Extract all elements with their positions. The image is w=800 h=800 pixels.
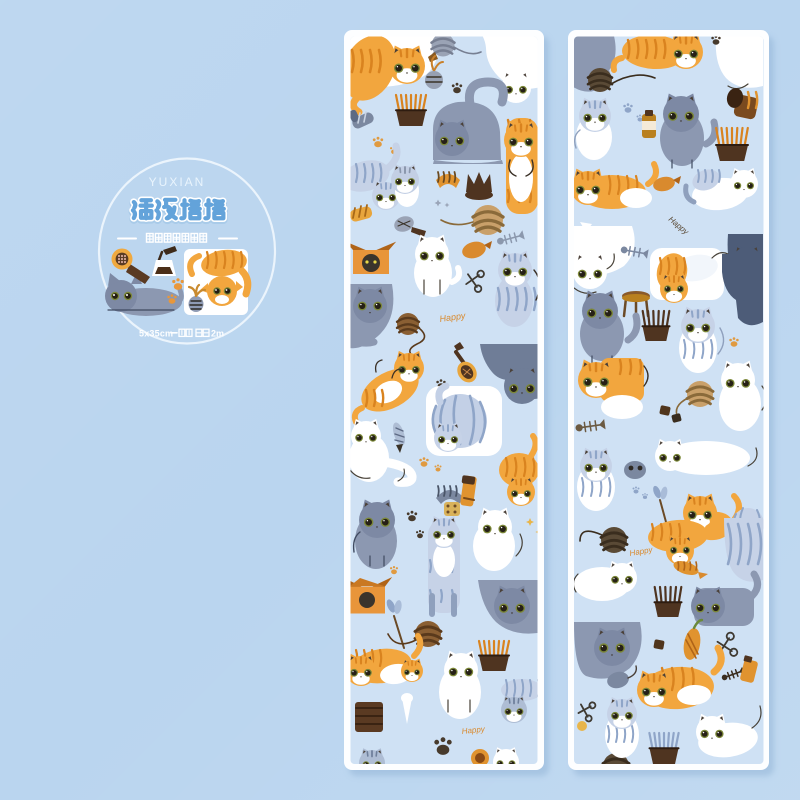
svg-text:2m: 2m (211, 329, 224, 339)
svg-text:YUXIAN: YUXIAN (149, 175, 206, 189)
svg-text:5x35cm: 5x35cm (139, 329, 173, 339)
